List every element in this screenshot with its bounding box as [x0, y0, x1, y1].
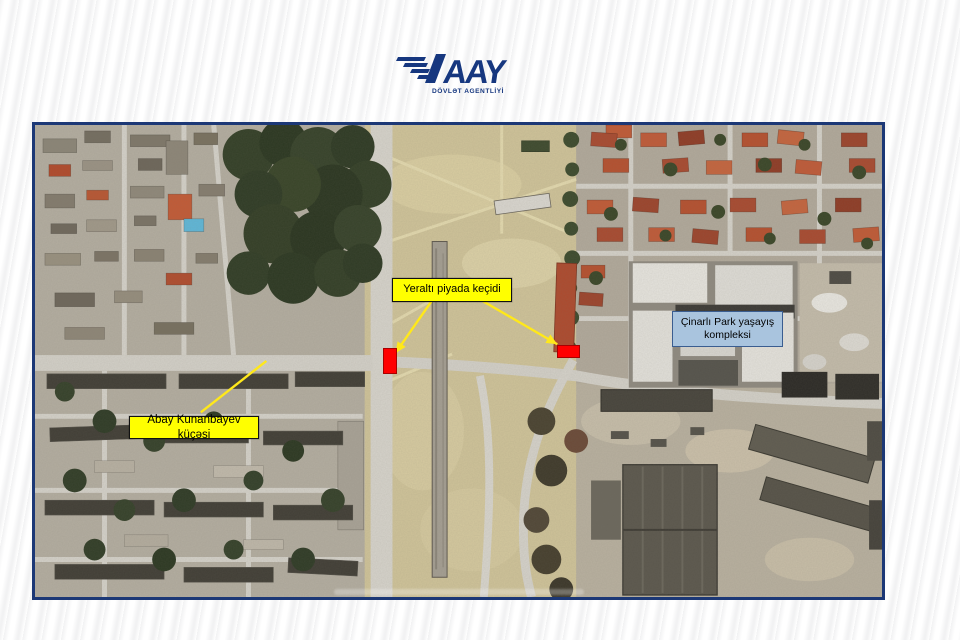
- map-frame: Yeraltı piyada keçidi Abay Kunanbayev kü…: [32, 122, 885, 600]
- agency-logo: AAY DÖVLƏT AGENTLİYİ: [396, 50, 518, 100]
- map-attribution: [334, 589, 584, 595]
- agency-logo-graphic: AAY DÖVLƏT AGENTLİYİ: [396, 50, 518, 100]
- logo-acronym: AAY: [441, 54, 509, 91]
- underpass-entrance-marker-east: [557, 345, 580, 358]
- complex-label: Çinarlı Park yaşayış kompleksi: [672, 311, 783, 347]
- slide-background: AAY DÖVLƏT AGENTLİYİ: [0, 0, 960, 640]
- street-label: Abay Kunanbayev küçəsi: [129, 416, 259, 439]
- logo-speed-lines-icon: [396, 54, 446, 83]
- satellite-map: [35, 125, 882, 597]
- logo-subtitle: DÖVLƏT AGENTLİYİ: [432, 86, 504, 95]
- underpass-entrance-marker-west: [383, 348, 397, 374]
- underpass-label: Yeraltı piyada keçidi: [392, 278, 512, 302]
